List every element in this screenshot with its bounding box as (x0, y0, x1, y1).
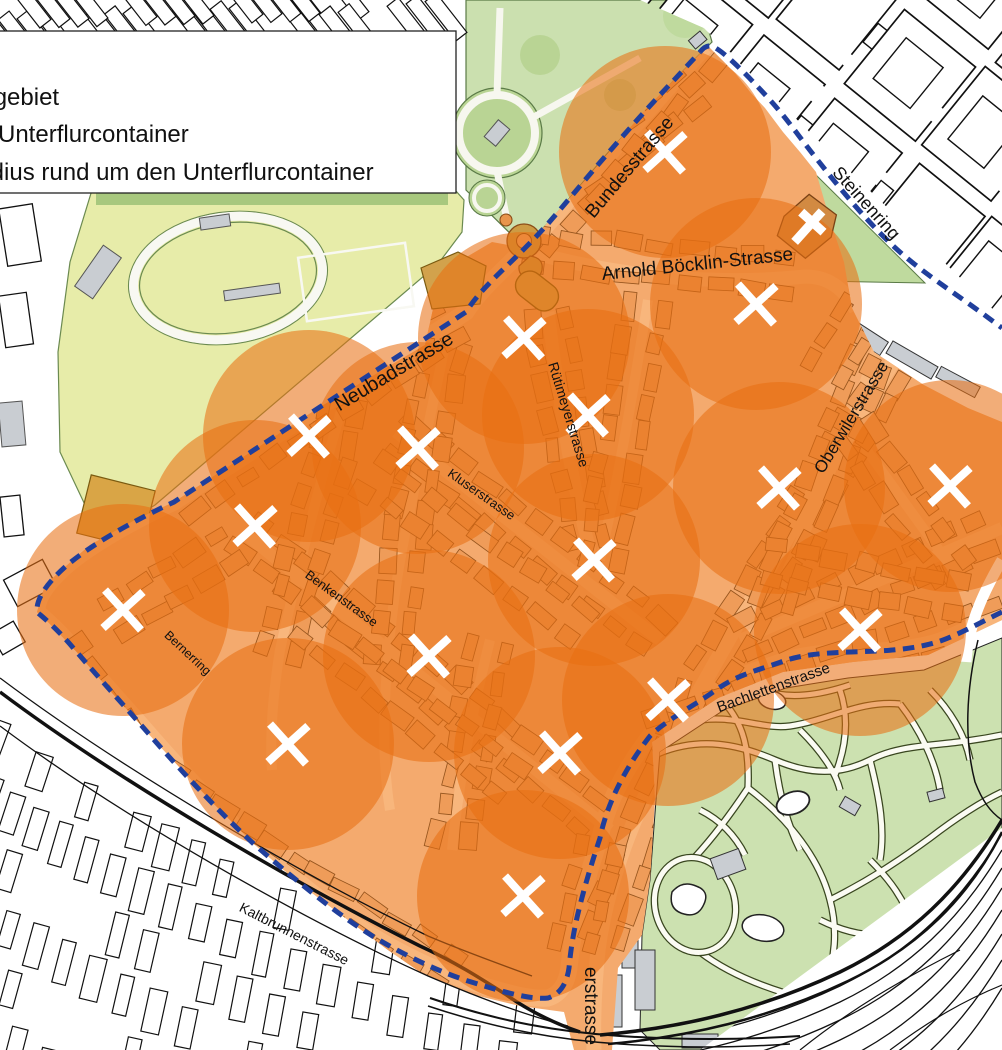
svg-text:Unterflurcontainer: Unterflurcontainer (0, 121, 189, 148)
svg-text:Radius rund um den Unterflurco: Radius rund um den Unterflurcontainer (0, 159, 374, 186)
svg-text:erstrasse: erstrasse (580, 967, 601, 1045)
svg-text:Pilotgebiet: Pilotgebiet (0, 84, 59, 111)
